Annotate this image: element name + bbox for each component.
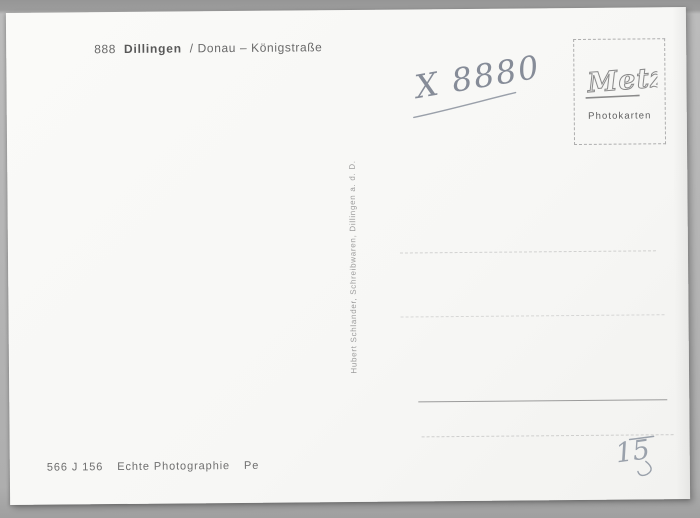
handwritten-code-text: X 8880 xyxy=(409,48,542,107)
postcard-city: Dillingen xyxy=(124,41,182,56)
postcard: 888 Dillingen / Donau – Königstraße X 88… xyxy=(6,7,690,505)
handwritten-mark: 15 xyxy=(600,427,687,486)
publisher-imprint: Hubert Schlander, Schreibwaren, Dillinge… xyxy=(348,160,359,373)
postcard-number: 888 xyxy=(94,42,116,56)
printer-imprint: 566 J 156 Echte Photographie Pe xyxy=(47,460,270,474)
printer-suffix: Pe xyxy=(244,460,259,472)
address-line xyxy=(401,314,665,317)
metz-logo-text: Metz xyxy=(585,62,657,99)
scanned-postcard-back: 888 Dillingen / Donau – Königstraße X 88… xyxy=(0,0,700,518)
postcard-caption: 888 Dillingen / Donau – Königstraße xyxy=(94,40,326,56)
printer-order-code: 566 J 156 xyxy=(47,461,104,473)
stamp-box-label: Photokarten xyxy=(588,110,651,122)
postcard-street: / Donau – Königstraße xyxy=(190,40,323,55)
address-line xyxy=(418,399,667,402)
address-line xyxy=(400,250,656,253)
metz-logo: Metz xyxy=(581,61,657,104)
stamp-box: Metz Photokarten xyxy=(573,38,666,145)
handwritten-code: X 8880 xyxy=(401,42,542,125)
printer-label: Echte Photographie xyxy=(117,460,230,473)
